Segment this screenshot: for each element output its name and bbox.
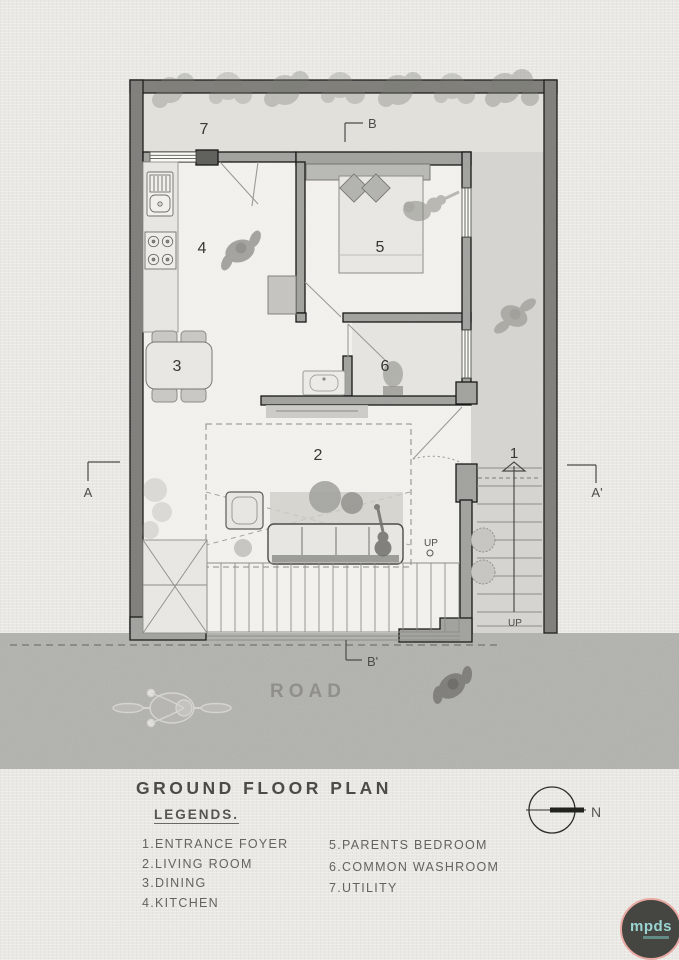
studio-logo-tagline-bar <box>643 936 669 939</box>
legend-item-dining: 3.DINING <box>142 876 289 890</box>
studio-logo-text: mpds <box>630 919 672 934</box>
legend-item-parents-bedroom: 5.PARENTS BEDROOM <box>329 838 499 852</box>
legend-item-utility: 7.UTILITY <box>329 881 499 895</box>
legend-column-2: 5.PARENTS BEDROOM 6.COMMON WASHROOM 7.UT… <box>329 838 499 903</box>
page-title: GROUND FLOOR PLAN <box>136 778 392 799</box>
legend-item-entrance-foyer: 1.ENTRANCE FOYER <box>142 837 289 851</box>
legend-heading: LEGENDS. <box>154 807 239 824</box>
legend-column-1: 1.ENTRANCE FOYER 2.LIVING ROOM 3.DINING … <box>142 837 289 915</box>
legend-item-living-room: 2.LIVING ROOM <box>142 857 289 871</box>
paper-texture <box>0 0 679 960</box>
floor-plan-drawing: 7 4 5 3 6 2 1 A A' B B' UP UP ROAD N <box>0 0 679 960</box>
studio-logo: mpds <box>620 898 679 960</box>
legend-item-common-washroom: 6.COMMON WASHROOM <box>329 860 499 874</box>
legend-item-kitchen: 4.KITCHEN <box>142 896 289 910</box>
